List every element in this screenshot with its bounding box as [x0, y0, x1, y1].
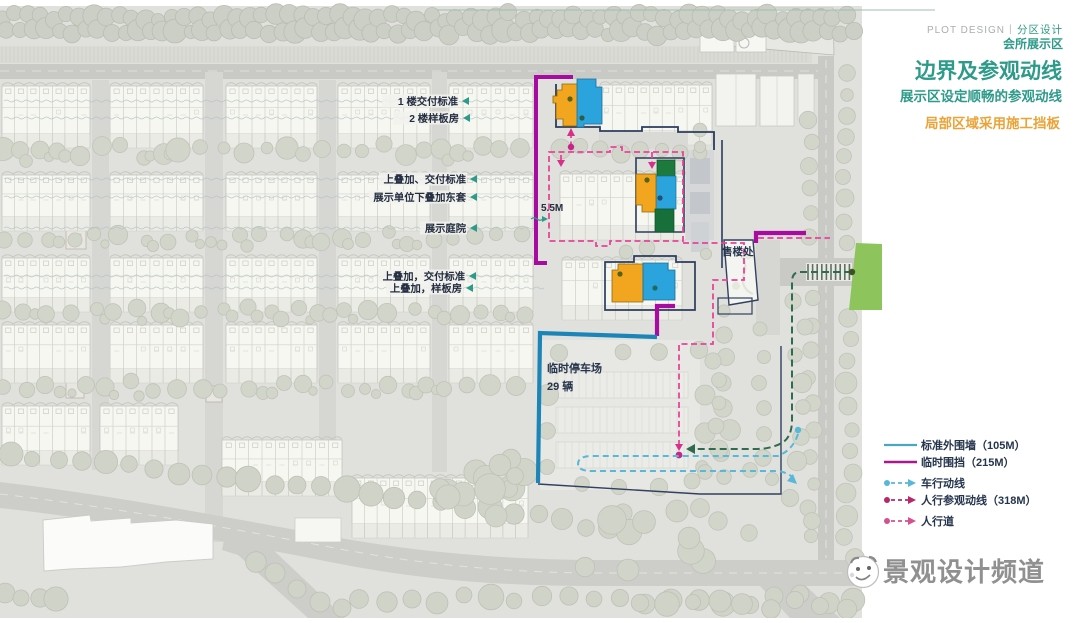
svg-text:展示区设定顺畅的参观动线: 展示区设定顺畅的参观动线 — [900, 88, 1062, 104]
svg-text:上叠加，样板房: 上叠加，样板房 — [390, 282, 462, 295]
svg-text:边界及参观动线: 边界及参观动线 — [915, 59, 1062, 83]
svg-text:5.5M: 5.5M — [541, 203, 563, 214]
svg-text:展示庭院: 展示庭院 — [425, 222, 467, 235]
svg-text:车行动线: 车行动线 — [921, 476, 965, 490]
svg-text:2 楼样板房: 2 楼样板房 — [409, 112, 459, 125]
svg-text:展示单位下叠加东套: 展示单位下叠加东套 — [373, 191, 466, 204]
svg-text:PLOT DESIGN: PLOT DESIGN — [927, 25, 1005, 36]
svg-text:|: | — [1009, 23, 1012, 35]
svg-text:1 楼交付标准: 1 楼交付标准 — [398, 95, 459, 108]
svg-text:分区设计: 分区设计 — [1017, 23, 1063, 36]
svg-text:人行道: 人行道 — [921, 514, 954, 528]
svg-text:售楼处: 售楼处 — [722, 245, 754, 258]
svg-text:会所展示区: 会所展示区 — [1003, 36, 1063, 51]
svg-text:标准外围墙（105M）: 标准外围墙（105M） — [920, 438, 1026, 452]
svg-text:局部区域采用施工挡板: 局部区域采用施工挡板 — [925, 115, 1060, 131]
svg-text:临时围挡（215M）: 临时围挡（215M） — [921, 455, 1015, 469]
svg-text:人行参观动线（318M）: 人行参观动线（318M） — [921, 493, 1037, 507]
svg-text:景观设计频道: 景观设计频道 — [883, 557, 1045, 587]
svg-text:上叠加、交付标准: 上叠加、交付标准 — [384, 173, 467, 186]
svg-text:上叠加，交付标准: 上叠加，交付标准 — [383, 270, 466, 283]
svg-text:29 辆: 29 辆 — [547, 379, 573, 393]
svg-text:临时停车场: 临时停车场 — [547, 361, 602, 375]
